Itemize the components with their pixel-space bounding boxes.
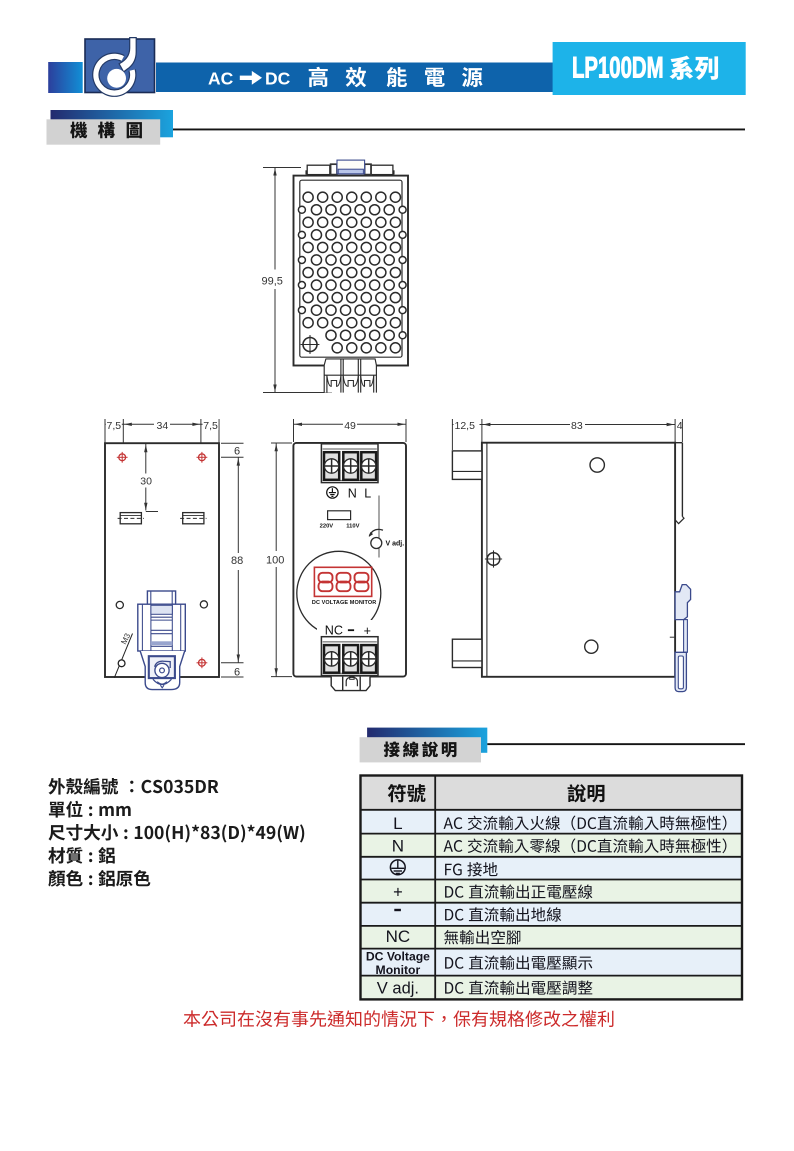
svg-text:6: 6 xyxy=(234,666,240,678)
svg-text:DC VOLTAGE MONITOR: DC VOLTAGE MONITOR xyxy=(312,600,376,606)
svg-text:4: 4 xyxy=(677,420,683,432)
svg-text:12,5: 12,5 xyxy=(455,420,476,432)
svg-text:AC: AC xyxy=(208,69,234,89)
svg-text:NC: NC xyxy=(325,623,343,637)
svg-text:83: 83 xyxy=(571,420,583,432)
svg-text:30: 30 xyxy=(140,475,152,487)
svg-text:88: 88 xyxy=(231,555,243,567)
svg-text:DC Voltage: DC Voltage xyxy=(366,949,430,963)
svg-text:7,5: 7,5 xyxy=(203,420,218,432)
svg-text:LP100DM: LP100DM xyxy=(572,52,664,85)
svg-text:N: N xyxy=(348,487,357,501)
svg-text:6: 6 xyxy=(234,446,240,458)
svg-text:+: + xyxy=(393,883,403,901)
svg-text:220V: 220V xyxy=(320,524,334,530)
svg-text:L: L xyxy=(364,487,371,501)
svg-text:34: 34 xyxy=(157,420,169,432)
svg-text:99,5: 99,5 xyxy=(262,276,283,288)
svg-text:49: 49 xyxy=(344,420,356,432)
svg-text:V adj.: V adj. xyxy=(377,980,419,998)
svg-text:NC: NC xyxy=(386,927,411,946)
svg-text:Monitor: Monitor xyxy=(376,963,421,977)
svg-text:V adj.: V adj. xyxy=(386,541,405,548)
svg-text:7,5: 7,5 xyxy=(107,420,122,432)
svg-text:100: 100 xyxy=(266,555,284,567)
svg-text:110V: 110V xyxy=(346,524,359,530)
svg-text:N: N xyxy=(392,837,404,856)
svg-text:DC: DC xyxy=(265,69,291,89)
svg-text:L: L xyxy=(393,814,402,833)
